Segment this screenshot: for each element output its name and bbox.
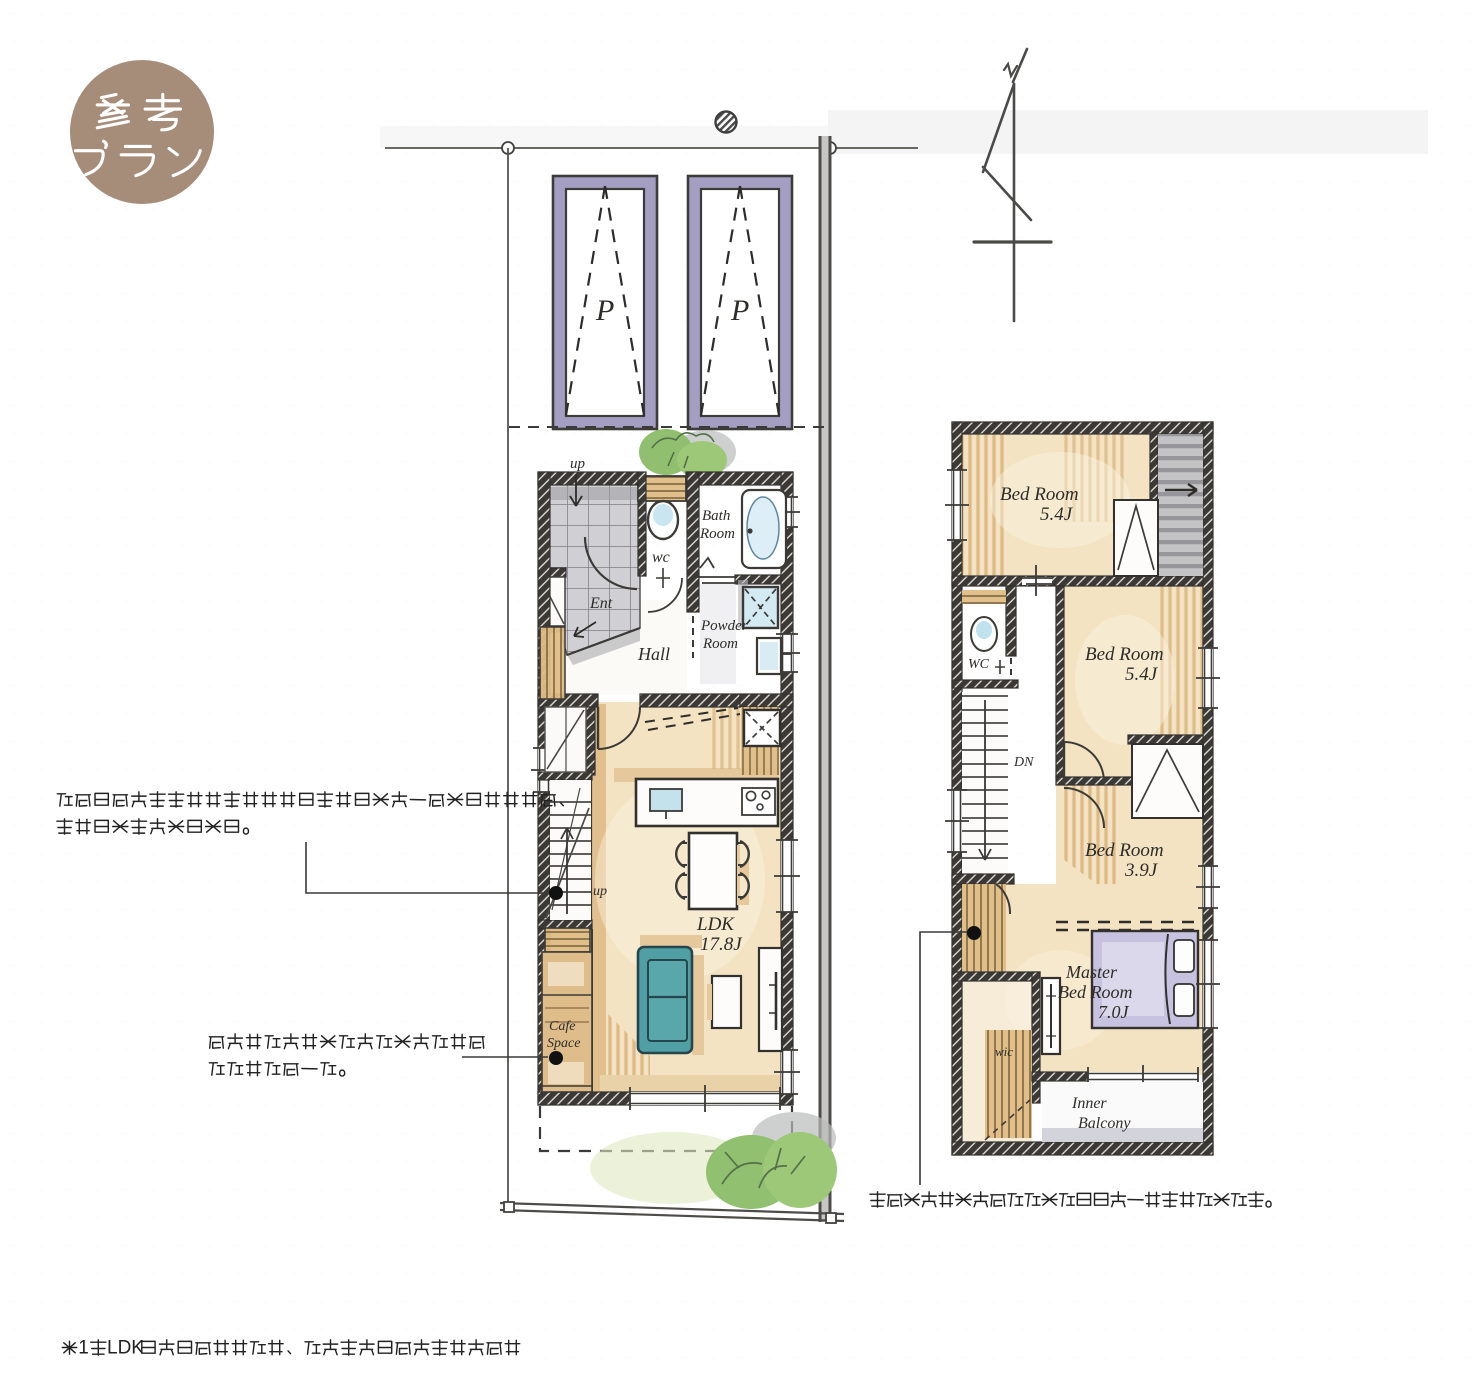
svg-text:1: 1 <box>78 1338 89 1359</box>
svg-text:3.9J: 3.9J <box>1124 860 1159 881</box>
svg-text:5.4J: 5.4J <box>1125 664 1159 685</box>
svg-text:Inner: Inner <box>1071 1095 1107 1112</box>
svg-text:Powder: Powder <box>700 618 748 634</box>
svg-text:wic: wic <box>995 1044 1013 1059</box>
svg-text:up: up <box>593 884 607 899</box>
svg-text:Ent: Ent <box>589 595 613 612</box>
svg-text:LDK: LDK <box>696 914 735 935</box>
svg-text:Bed Room: Bed Room <box>1058 982 1132 1002</box>
svg-text:Bed Room: Bed Room <box>1085 644 1164 665</box>
svg-text:7.0J: 7.0J <box>1098 1002 1130 1022</box>
svg-text:Room: Room <box>702 636 738 652</box>
svg-text:up: up <box>570 456 586 472</box>
svg-text:P: P <box>730 294 749 327</box>
svg-text:LDK: LDK <box>107 1338 144 1359</box>
svg-text:Space: Space <box>547 1036 580 1051</box>
svg-text:Balcony: Balcony <box>1078 1115 1131 1132</box>
svg-text:Room: Room <box>699 526 735 542</box>
svg-text:Bed Room: Bed Room <box>1085 840 1164 861</box>
svg-text:Master: Master <box>1065 962 1118 982</box>
svg-text:wc: wc <box>652 549 670 566</box>
svg-text:5.4J: 5.4J <box>1040 504 1074 525</box>
svg-text:Cafe: Cafe <box>549 1019 575 1034</box>
svg-text:Bed Room: Bed Room <box>1000 484 1079 505</box>
svg-text:P: P <box>595 294 614 327</box>
svg-text:WC: WC <box>968 657 990 672</box>
svg-text:DN: DN <box>1013 755 1034 770</box>
svg-text:Hall: Hall <box>637 644 670 664</box>
svg-text:17.8J: 17.8J <box>700 934 743 955</box>
svg-text:Bath: Bath <box>702 508 730 524</box>
